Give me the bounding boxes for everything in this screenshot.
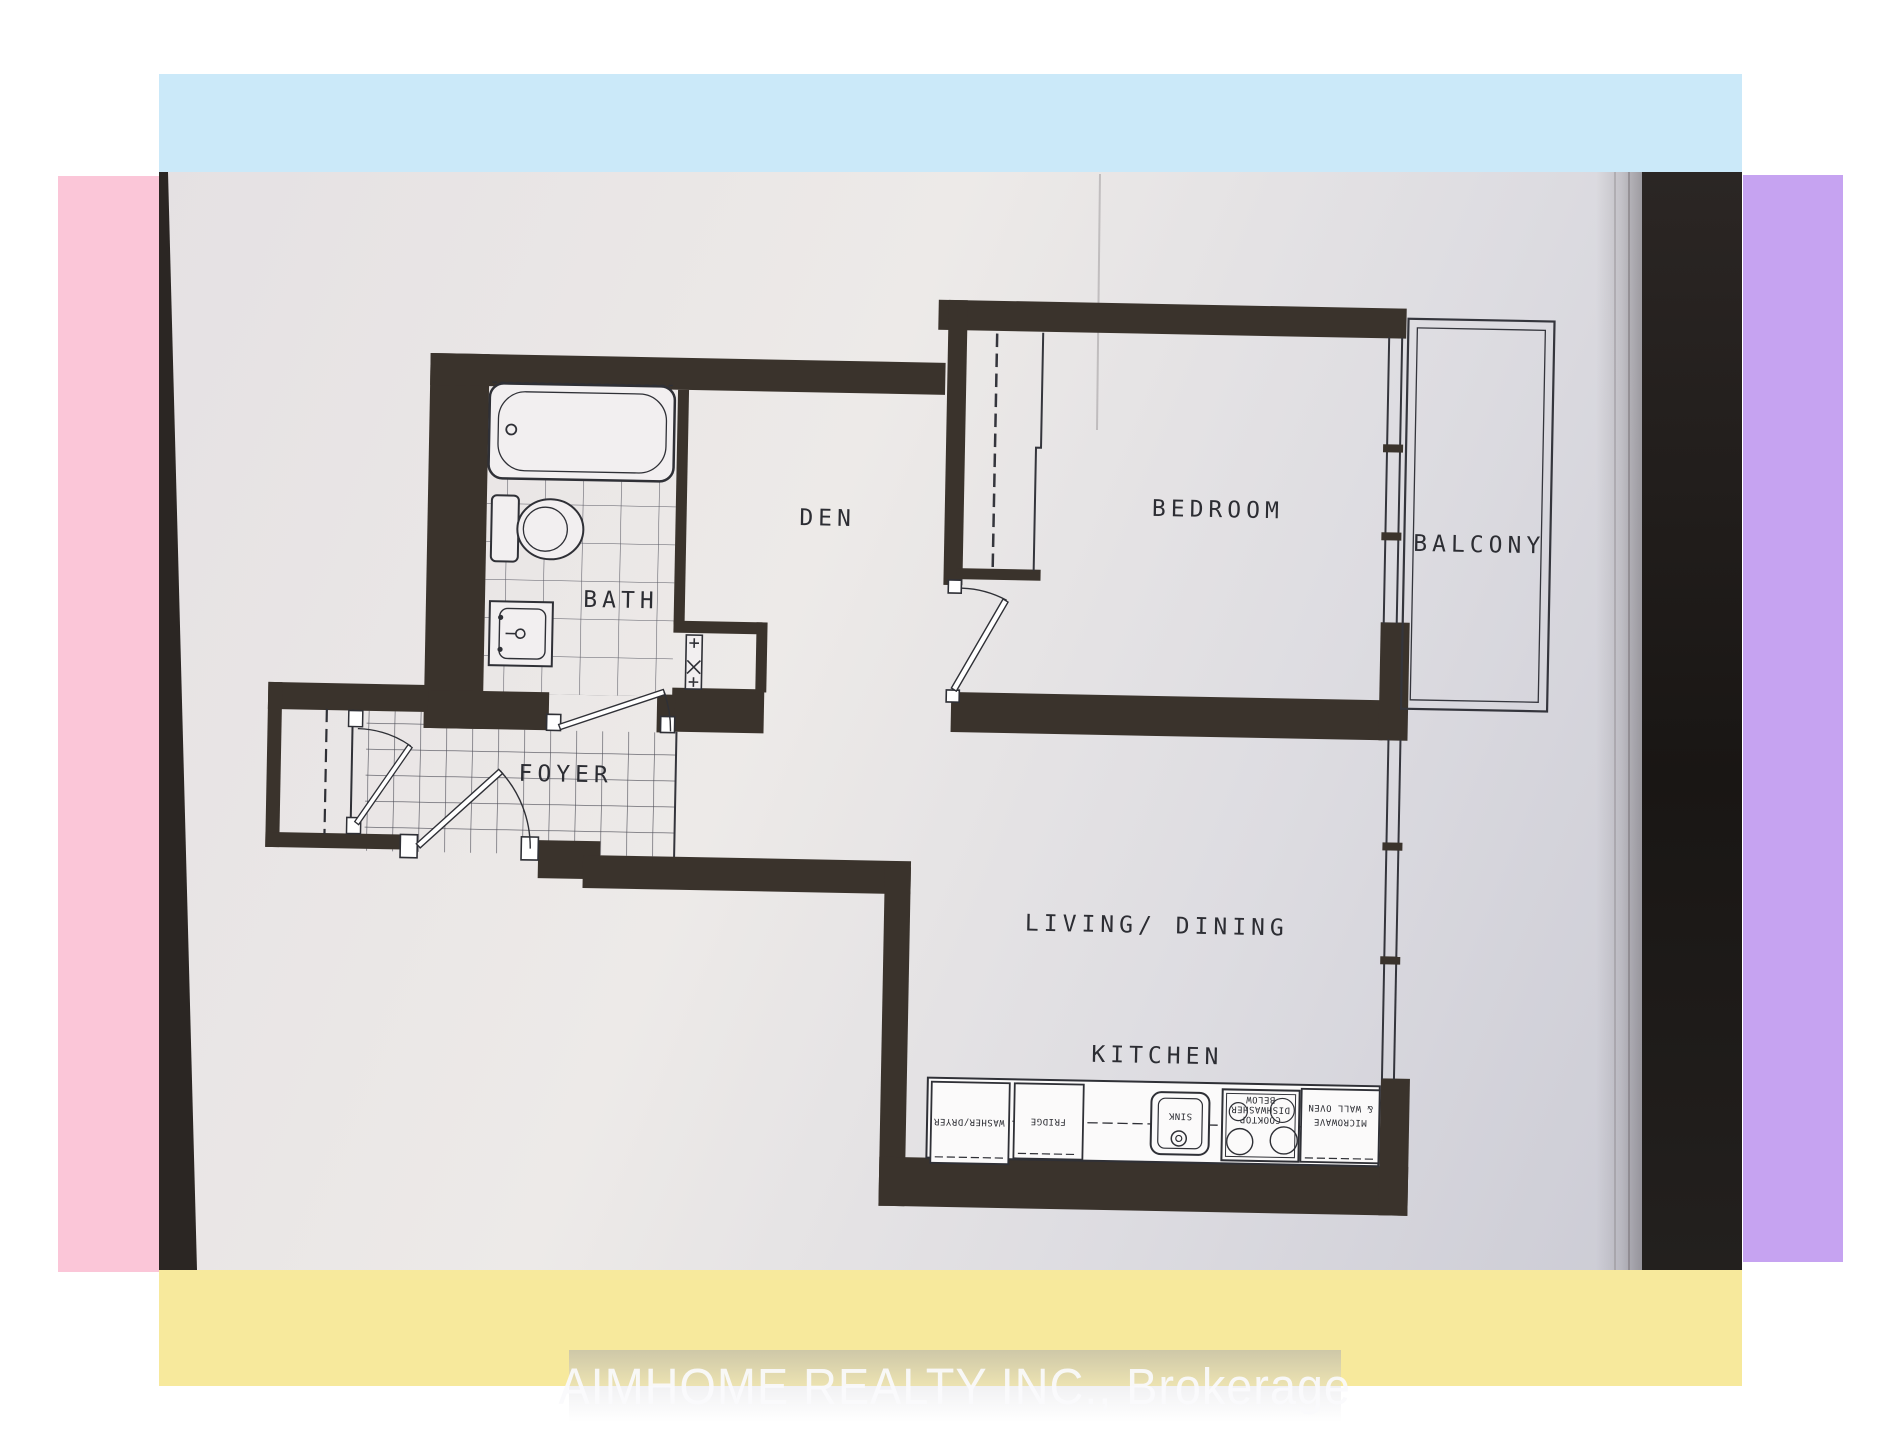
kitchen-counter: WASHER/DRYER FRIDGE SINK	[926, 1078, 1380, 1172]
cooktop-symbol: BELOW DISHWASHER COOKTOP	[1221, 1089, 1299, 1161]
wall-bedroom-west	[943, 300, 967, 585]
wall-closet-west	[265, 682, 282, 847]
svg-text:& WALL OVEN: & WALL OVEN	[1308, 1102, 1373, 1113]
bedroom-closet	[993, 333, 1044, 570]
living-dining-label: LIVING/ DINING	[1025, 910, 1289, 941]
wall-bath-east	[674, 390, 690, 625]
photo-left-dark-edge	[159, 172, 197, 1270]
svg-text:WASHER/DRYER: WASHER/DRYER	[933, 1116, 1004, 1127]
wall-bath-west	[424, 353, 490, 729]
fridge-symbol: FRIDGE	[1013, 1083, 1083, 1159]
bedroom-label: BEDROOM	[1152, 496, 1284, 525]
collage-canvas: WASHER/DRYER FRIDGE SINK	[0, 0, 1900, 1437]
paper-crease	[1097, 174, 1100, 430]
wall-foyer-south-left	[265, 832, 403, 850]
wall-bedroom-south	[951, 692, 1384, 740]
microwave-wall-oven-symbol: & WALL OVEN MICROWAVE	[1300, 1089, 1379, 1163]
kitchen-label: KITCHEN	[1091, 1042, 1223, 1071]
watermark-bar: AIMHOME REALTY INC., Brokerage	[569, 1350, 1341, 1422]
wall-bedroom-se-block	[1378, 622, 1409, 741]
vanity-sink-symbol	[489, 601, 553, 666]
svg-text:DISHWASHER: DISHWASHER	[1231, 1103, 1290, 1114]
svg-text:SINK: SINK	[1168, 1110, 1192, 1120]
wall-foyer-south-b	[582, 855, 911, 894]
bath-label: BATH	[583, 587, 659, 614]
brokerage-watermark-text: AIMHOME REALTY INC., Brokerage	[559, 1357, 1351, 1416]
wall-foyer-north	[268, 682, 428, 712]
wall-bedroom-north	[938, 300, 1406, 339]
toilet-symbol	[491, 495, 584, 563]
foyer-label: FOYER	[518, 761, 613, 789]
svg-text:BELOW: BELOW	[1246, 1094, 1276, 1105]
sink-symbol: SINK	[1150, 1092, 1209, 1155]
floorplan-drawing: WASHER/DRYER FRIDGE SINK	[0, 0, 1900, 1437]
bedroom-door	[946, 580, 1008, 703]
linen-shelf-symbol	[685, 635, 702, 689]
wall-linen-bottom	[671, 688, 764, 734]
wall-bath-south-left	[424, 690, 550, 730]
den-label: DEN	[799, 505, 856, 532]
wall-linen-east	[755, 622, 767, 692]
wall-linen-top	[673, 621, 765, 635]
balcony-label: BALCONY	[1413, 531, 1545, 560]
wall-kitchen-east-block	[1378, 1078, 1410, 1216]
balcony-railing	[1401, 319, 1554, 712]
wall-living-west	[878, 867, 911, 1206]
wall-bedroom-closet-bottom	[956, 568, 1040, 581]
svg-text:FRIDGE: FRIDGE	[1030, 1116, 1066, 1127]
washer-dryer-symbol: WASHER/DRYER	[930, 1082, 1010, 1164]
svg-text:MICROWAVE: MICROWAVE	[1313, 1116, 1366, 1127]
